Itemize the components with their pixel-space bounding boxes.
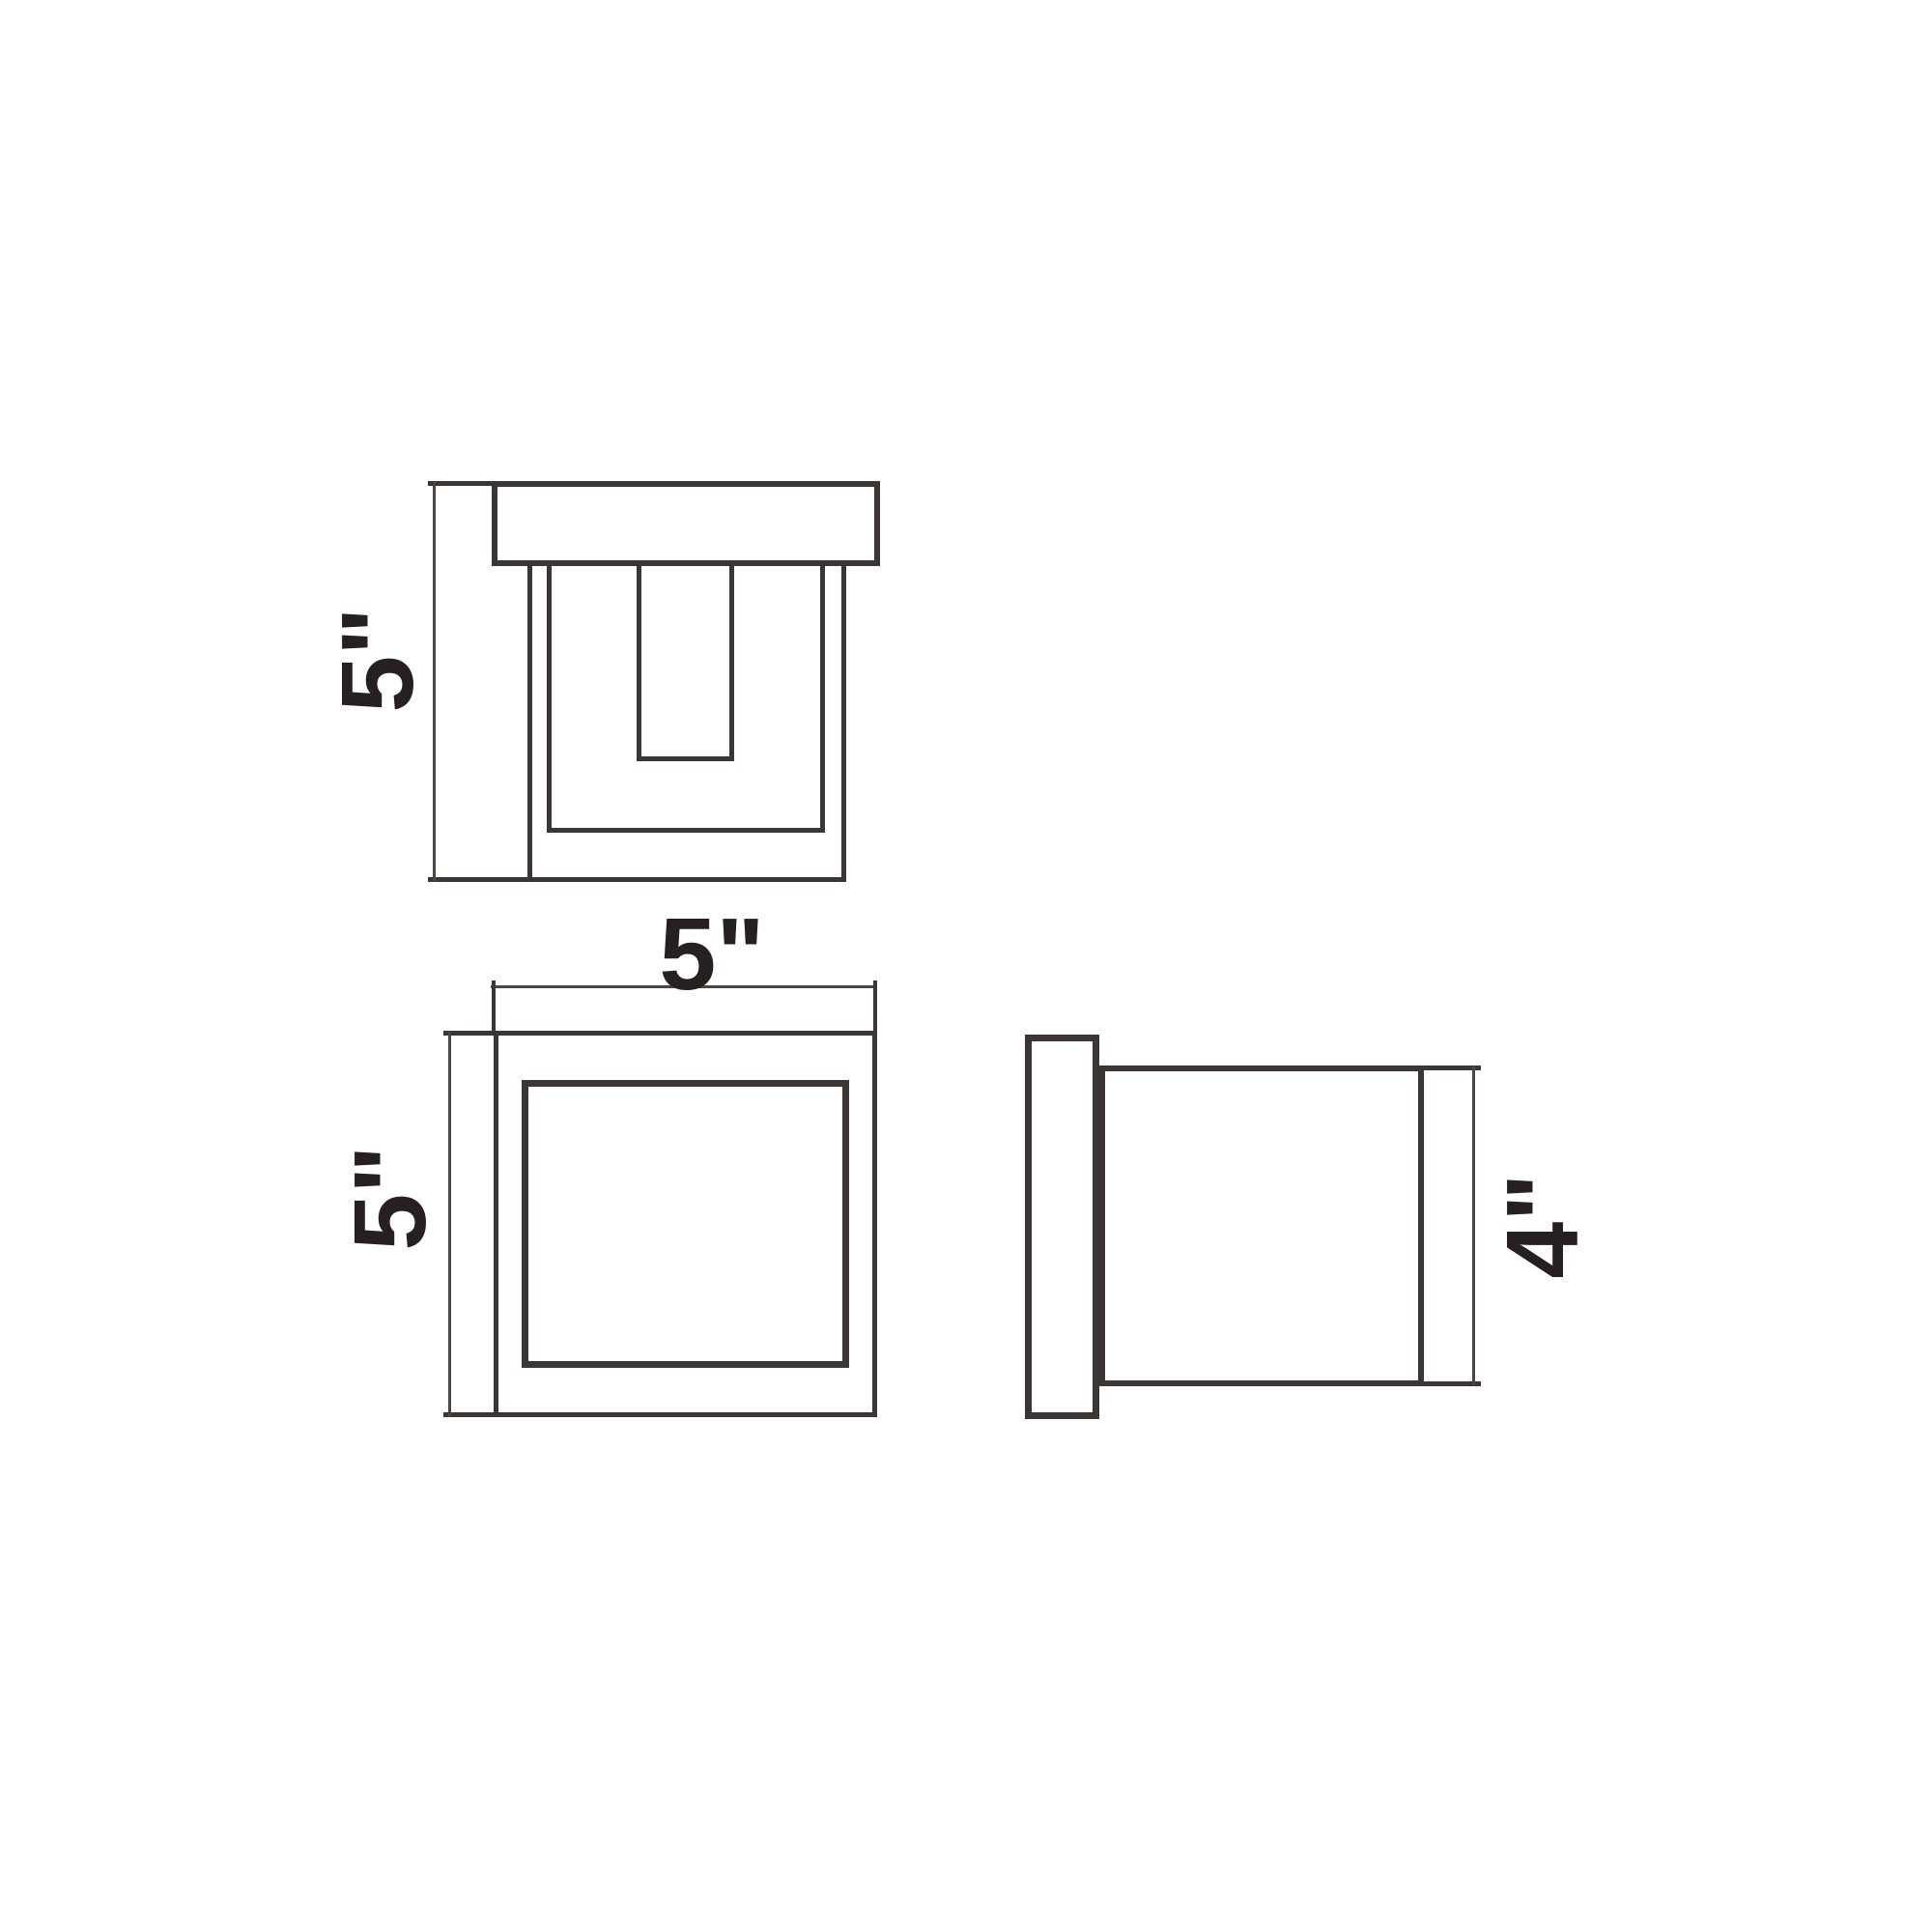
plan-lens-outline xyxy=(522,1080,849,1368)
front-inner-frame-right-line xyxy=(820,566,825,833)
plan-depth-dim-label: 5" xyxy=(339,1145,441,1250)
side-body-outline xyxy=(1099,1065,1424,1386)
front-cap-outline xyxy=(492,481,880,566)
side-wall-plate-outline xyxy=(1025,1035,1099,1419)
side-height-dim-label: 4" xyxy=(1492,1173,1594,1278)
front-height-dim-label: 5" xyxy=(327,607,429,712)
front-inner-frame-bottom-line xyxy=(547,828,825,833)
front-height-ext-top-tick xyxy=(428,481,505,486)
front-height-ext-bottom-tick xyxy=(428,877,529,882)
plan-width-ext-left-tick xyxy=(492,980,496,1032)
plan-depth-ext-top-tick xyxy=(443,1031,523,1036)
dimension-drawing-canvas: 5" 5" 5" 4" xyxy=(0,0,1932,1932)
plan-width-ext-right-tick xyxy=(873,980,877,1032)
front-inner-frame-left-line xyxy=(547,566,552,833)
side-height-dimension-line xyxy=(1472,1066,1475,1385)
front-lamp-slot-left-line xyxy=(637,566,641,761)
plan-width-dim-label: 5" xyxy=(659,903,764,1006)
front-lamp-slot-bottom-line xyxy=(637,756,734,761)
front-lamp-slot-right-line xyxy=(729,566,734,761)
front-body-outline xyxy=(527,561,846,882)
plan-depth-ext-bottom-tick xyxy=(443,1412,523,1417)
plan-depth-dimension-line xyxy=(448,1032,451,1417)
